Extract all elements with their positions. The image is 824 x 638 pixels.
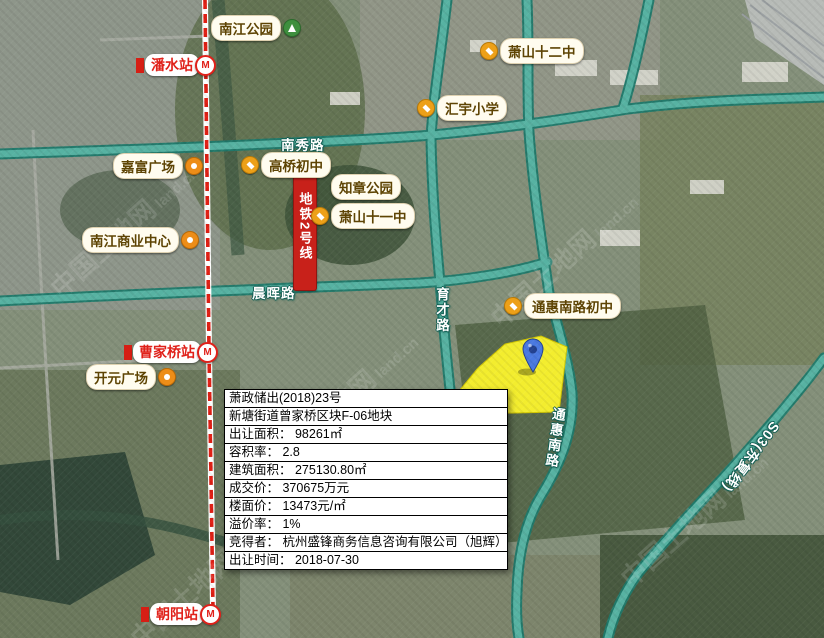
metro-line-2 — [205, 0, 213, 609]
school-icon — [417, 99, 435, 117]
station-marker-icon — [136, 58, 144, 73]
station-label: 潘水站 — [145, 54, 199, 76]
station-panshui[interactable]: 潘水站 M — [136, 54, 216, 76]
metro-logo-icon: M — [200, 604, 221, 625]
poi-tonghui-middle-school[interactable]: 通惠南路初中 — [504, 293, 621, 319]
parcel-transfer-date: 出让时间： 2018-07-30 — [224, 551, 508, 570]
road-label-yucai: 育才路 — [431, 287, 451, 334]
school-icon — [241, 156, 259, 174]
station-label: 朝阳站 — [150, 603, 204, 625]
parcel-premium-rate: 溢价率： 1% — [224, 515, 508, 534]
station-marker-icon — [124, 345, 132, 360]
poi-zhizhang-park[interactable]: 知章公园 — [331, 174, 401, 200]
poi-label: 嘉富广场 — [113, 153, 183, 179]
poi-gaoqiao-middle-school[interactable]: 高桥初中 — [241, 152, 331, 178]
poi-label: 高桥初中 — [261, 152, 331, 178]
poi-label: 萧山十二中 — [500, 38, 584, 64]
parcel-winner: 竞得者： 杭州盛锋商务信息咨询有限公司（旭辉） — [224, 533, 508, 552]
poi-kaiyuan-plaza[interactable]: 开元广场 — [86, 364, 176, 390]
station-caojiaqiao[interactable]: 曹家桥站 M — [124, 341, 218, 363]
poi-huiyu-primary-school[interactable]: 汇宇小学 — [417, 95, 507, 121]
metro-logo-icon: M — [195, 55, 216, 76]
poi-label: 通惠南路初中 — [524, 293, 621, 319]
parcel-deal-price: 成交价： 370675万元 — [224, 479, 508, 498]
poi-xiaoshan-12-school[interactable]: 萧山十二中 — [480, 38, 584, 64]
poi-xiaoshan-11-school[interactable]: 萧山十一中 — [311, 203, 415, 229]
poi-label: 南江商业中心 — [82, 227, 179, 253]
parcel-area: 出让面积： 98261㎡ — [224, 425, 508, 444]
poi-label: 汇宇小学 — [437, 95, 507, 121]
plaza-icon — [181, 231, 199, 249]
park-icon — [283, 19, 301, 37]
poi-label: 南江公园 — [211, 15, 281, 41]
parcel-name: 新塘街道曾家桥区块F-06地块 — [224, 407, 508, 426]
satellite-map-view[interactable]: 中国土地网land.cn 中国土地网land.cn 中国土地网land.cn 中… — [0, 0, 824, 638]
poi-jiafu-plaza[interactable]: 嘉富广场 — [113, 153, 203, 179]
school-icon — [311, 207, 329, 225]
road-label-chenhui: 晨晖路 — [252, 282, 296, 302]
station-marker-icon — [141, 607, 149, 622]
school-icon — [504, 297, 522, 315]
road-label-nanxiu: 南秀路 — [281, 134, 325, 154]
poi-nanjiang-business-center[interactable]: 南江商业中心 — [82, 227, 199, 253]
parcel-id: 萧政储出(2018)23号 — [224, 389, 508, 408]
road-label-s03: S03(东复线) — [718, 417, 785, 496]
school-icon — [480, 42, 498, 60]
parcel-info-box: 萧政储出(2018)23号 新塘街道曾家桥区块F-06地块 出让面积： 9826… — [224, 389, 508, 570]
watermark: 中国土地网land.cn — [612, 442, 775, 594]
poi-label: 萧山十一中 — [331, 203, 415, 229]
station-chaoyang[interactable]: 朝阳站 M — [141, 603, 221, 625]
poi-label: 知章公园 — [331, 174, 401, 200]
poi-label: 开元广场 — [86, 364, 156, 390]
parcel-floor-price: 楼面价： 13473元/㎡ — [224, 497, 508, 516]
station-label: 曹家桥站 — [133, 341, 201, 363]
minor-roads — [0, 36, 210, 560]
poi-nanjiang-park[interactable]: 南江公园 — [211, 15, 301, 41]
metro-logo-icon: M — [197, 342, 218, 363]
parcel-plot-ratio: 容积率： 2.8 — [224, 443, 508, 462]
parcel-building-area: 建筑面积： 275130.80㎡ — [224, 461, 508, 480]
location-pin[interactable] — [518, 339, 543, 376]
road-label-tonghui-south: 通惠南路 — [539, 406, 567, 470]
plaza-icon — [185, 157, 203, 175]
plaza-icon — [158, 368, 176, 386]
